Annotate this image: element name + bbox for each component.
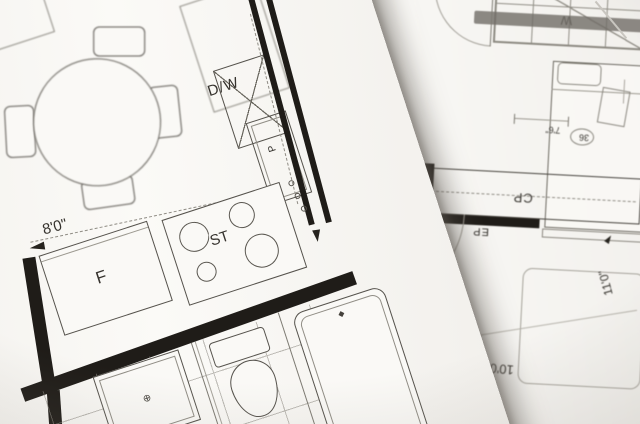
electrical-panel-label: EP [472, 225, 489, 237]
kitchen-dimension-arrow [29, 242, 45, 252]
door-swing-arc-2 [432, 0, 494, 47]
bed-dimension-label: 7'6" [545, 125, 560, 135]
closet-label: CP [512, 191, 533, 205]
stove-burner [240, 229, 283, 272]
bed-pillow [557, 62, 602, 86]
stove-burner [175, 218, 213, 256]
photo-of-floor-plans: 36 7'6" W CP EP P 8'0" 10 [0, 0, 640, 424]
stove-box [161, 182, 307, 306]
dining-chair [4, 105, 37, 158]
dining-table [16, 42, 177, 203]
dining-chair [93, 26, 145, 56]
wall-marker-arrow [312, 229, 322, 242]
faint-room-outline [517, 268, 640, 390]
stove-burner [225, 199, 258, 232]
circled-reference-label: 36 [579, 132, 589, 142]
closet-pole-dashed-line [436, 191, 636, 202]
corner-cabinet [0, 0, 55, 61]
stove-burner [194, 259, 219, 284]
